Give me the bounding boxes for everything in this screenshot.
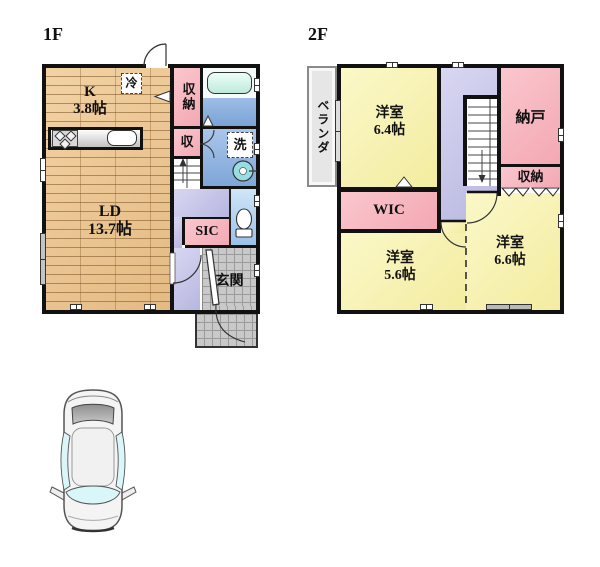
bedroom66-size: 6.6帖 <box>470 253 550 269</box>
hall-door-opening <box>170 253 174 284</box>
back-door-opening <box>146 64 168 68</box>
wall <box>200 68 203 126</box>
wall <box>497 164 560 167</box>
window <box>40 233 46 285</box>
floor-1f-title: 1F <box>43 24 63 45</box>
wall <box>185 217 229 219</box>
wall <box>200 186 256 189</box>
kitchen-size: 3.8帖 <box>52 101 128 118</box>
bedroom56-name: 洋室 <box>360 251 440 267</box>
window <box>254 78 260 92</box>
wall <box>182 217 185 245</box>
window <box>144 304 156 310</box>
car-top-view <box>50 390 136 531</box>
window <box>486 304 532 310</box>
entrance-label: 玄関 <box>203 274 256 290</box>
wall <box>174 126 203 129</box>
kitchen-name: K <box>60 84 120 101</box>
car-body <box>64 390 122 531</box>
window <box>386 62 398 68</box>
wall <box>185 245 256 248</box>
window <box>70 304 82 310</box>
floorplan-canvas: 1F 収納 収 洗 SIC 冷 2F ベランダ <box>0 0 600 567</box>
car-rear-window <box>72 404 114 424</box>
wall <box>437 68 441 232</box>
car-window-left <box>61 432 70 490</box>
storeroom-label: 納戸 <box>501 110 560 127</box>
bedroom64-size: 6.4帖 <box>352 123 427 139</box>
entrance-porch <box>195 310 258 348</box>
car-front-bumper <box>72 528 114 531</box>
window <box>558 128 564 142</box>
window <box>40 158 46 182</box>
bedroom66-name: 洋室 <box>470 236 550 252</box>
wall <box>463 95 497 99</box>
car-windshield <box>66 486 120 504</box>
car-roof <box>72 428 114 486</box>
floor-2f-title: 2F <box>308 24 328 45</box>
wall <box>463 95 467 186</box>
window <box>420 304 433 310</box>
bedroom56-size: 5.6帖 <box>360 268 440 284</box>
window <box>254 143 260 155</box>
wall <box>341 229 441 233</box>
bedroom64-name: 洋室 <box>352 106 427 122</box>
wall <box>497 164 501 196</box>
wall <box>203 126 256 129</box>
wall <box>200 126 203 186</box>
living-name: LD <box>70 203 150 221</box>
back-door <box>144 44 166 66</box>
car-front-line <box>68 516 118 521</box>
window <box>558 214 564 228</box>
car-rear-line <box>68 396 118 402</box>
car-mirror-left <box>50 487 66 500</box>
front-door-opening <box>212 306 256 310</box>
wall <box>229 189 231 245</box>
car-mirror-right <box>120 487 136 500</box>
car-window-right <box>116 432 125 490</box>
window <box>254 195 260 207</box>
veranda: ベランダ <box>307 66 337 187</box>
wall <box>174 156 200 159</box>
wall <box>341 187 441 192</box>
living-size: 13.7帖 <box>56 221 164 239</box>
veranda-door-window <box>335 100 341 162</box>
window <box>452 62 464 68</box>
